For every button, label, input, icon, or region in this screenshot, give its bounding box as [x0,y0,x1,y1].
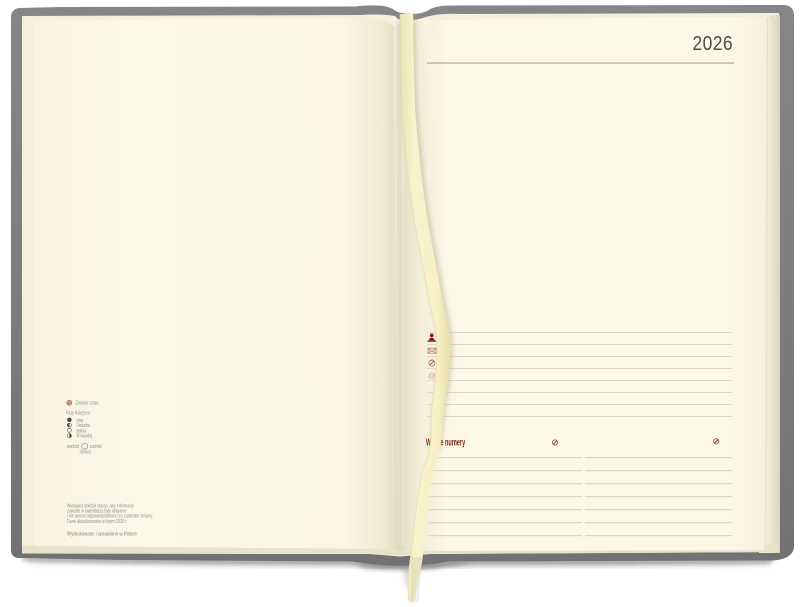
svg-text:Wydrukowano i oprawiono w Pols: Wydrukowano i oprawiono w Polsce [67,531,137,538]
svg-text:wschód: wschód [67,444,80,450]
svg-text:2026: 2026 [693,33,733,56]
svg-text:Dane aktualizowano w lutym 202: Dane aktualizowano w lutym 2025 r. [67,518,127,524]
svg-text:Zmiana czasu: Zmiana czasu [76,400,99,406]
svg-text:zachód: zachód [90,444,102,450]
svg-text:@: @ [428,371,436,380]
svg-text:Słońca: Słońca [80,449,91,455]
svg-text:Fazy Księżyca: Fazy Księżyca [66,410,90,416]
svg-text:III kwadra: III kwadra [77,433,93,439]
